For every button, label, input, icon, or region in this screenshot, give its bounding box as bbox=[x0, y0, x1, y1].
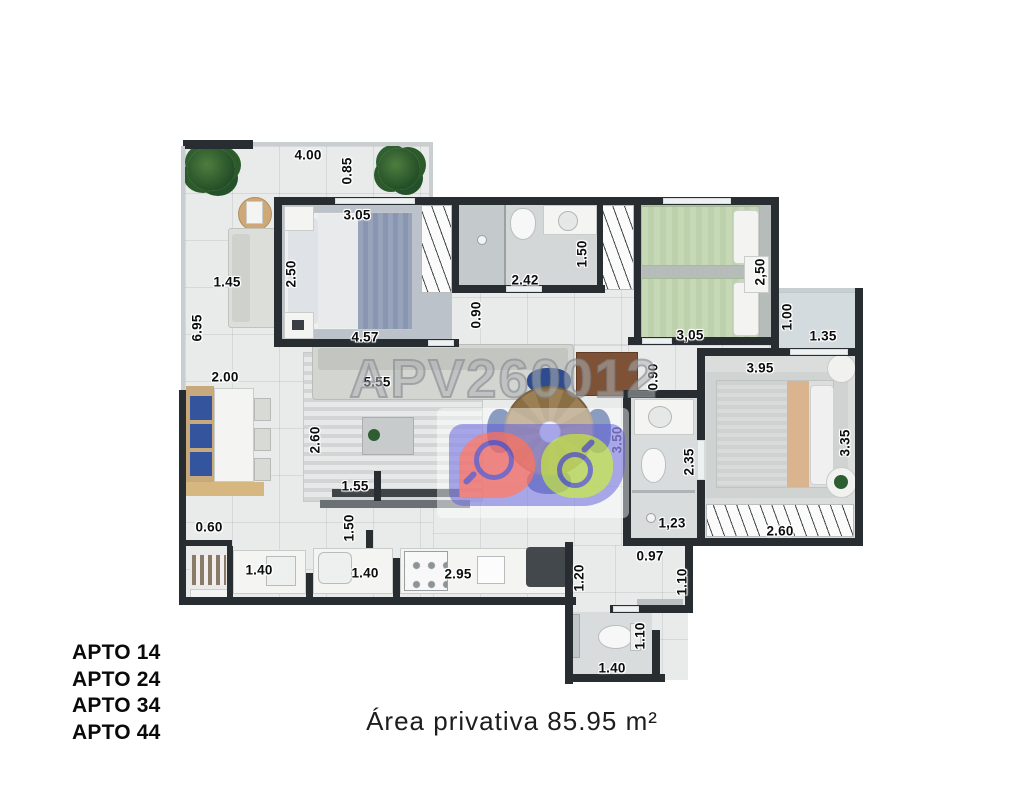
watermark-code: APV260012 bbox=[284, 348, 724, 410]
dimension-label: 4.57 bbox=[351, 330, 378, 345]
dimension-label: 2.50 bbox=[284, 260, 299, 287]
dimension-label: 0.90 bbox=[469, 301, 484, 328]
apartment-label: APTO 14 bbox=[72, 640, 161, 667]
dimension-label: 4.00 bbox=[294, 148, 321, 163]
dimension-label: 1.10 bbox=[633, 622, 648, 649]
dimension-label: 2.95 bbox=[444, 567, 471, 582]
floor-plan-page: 4.000.853.051.452.504.576.952.005.552.60… bbox=[0, 0, 1024, 804]
dimension-label: 1.45 bbox=[213, 275, 240, 290]
dimension-label: 1.55 bbox=[341, 479, 368, 494]
apartment-list: APTO 14 APTO 24 APTO 34 APTO 44 bbox=[72, 640, 161, 746]
apartment-label: APTO 34 bbox=[72, 693, 161, 720]
dimension-label: 1.40 bbox=[351, 566, 378, 581]
dimension-label: 2.00 bbox=[211, 370, 238, 385]
dimension-label: 1.35 bbox=[809, 329, 836, 344]
watermark-logo bbox=[449, 424, 625, 506]
dimension-label: 2.60 bbox=[766, 524, 793, 539]
dimension-label: 2.42 bbox=[511, 273, 538, 288]
apartment-label: APTO 24 bbox=[72, 667, 161, 694]
private-area-label: Área privativa 85.95 m² bbox=[262, 706, 762, 737]
dimension-label: 1.50 bbox=[342, 514, 357, 541]
magnifier-icon bbox=[474, 440, 514, 480]
dimension-label: 3.05 bbox=[343, 208, 370, 223]
dimension-label: 3.95 bbox=[746, 361, 773, 376]
dimension-label: 6.95 bbox=[190, 314, 205, 341]
dimension-label: 2,50 bbox=[753, 258, 768, 285]
apartment-label: APTO 44 bbox=[72, 720, 161, 747]
dimension-label: 2.35 bbox=[682, 448, 697, 475]
dimension-label: 1.00 bbox=[780, 303, 795, 330]
dimension-label: 0.97 bbox=[636, 549, 663, 564]
dimension-label: 0.60 bbox=[195, 520, 222, 535]
dimension-label: 3,05 bbox=[676, 328, 703, 343]
dimension-label: 1.40 bbox=[598, 661, 625, 676]
dimension-label: 3.35 bbox=[838, 429, 853, 456]
dimension-label: 1,23 bbox=[658, 516, 685, 531]
magnifier-icon bbox=[557, 452, 593, 488]
dimension-label: 1.20 bbox=[572, 564, 587, 591]
dimension-label: 1.50 bbox=[575, 240, 590, 267]
dimension-label: 2.60 bbox=[308, 426, 323, 453]
dimension-label: 0.85 bbox=[340, 157, 355, 184]
dimension-label: 1.40 bbox=[245, 563, 272, 578]
dimension-label: 1.10 bbox=[675, 568, 690, 595]
